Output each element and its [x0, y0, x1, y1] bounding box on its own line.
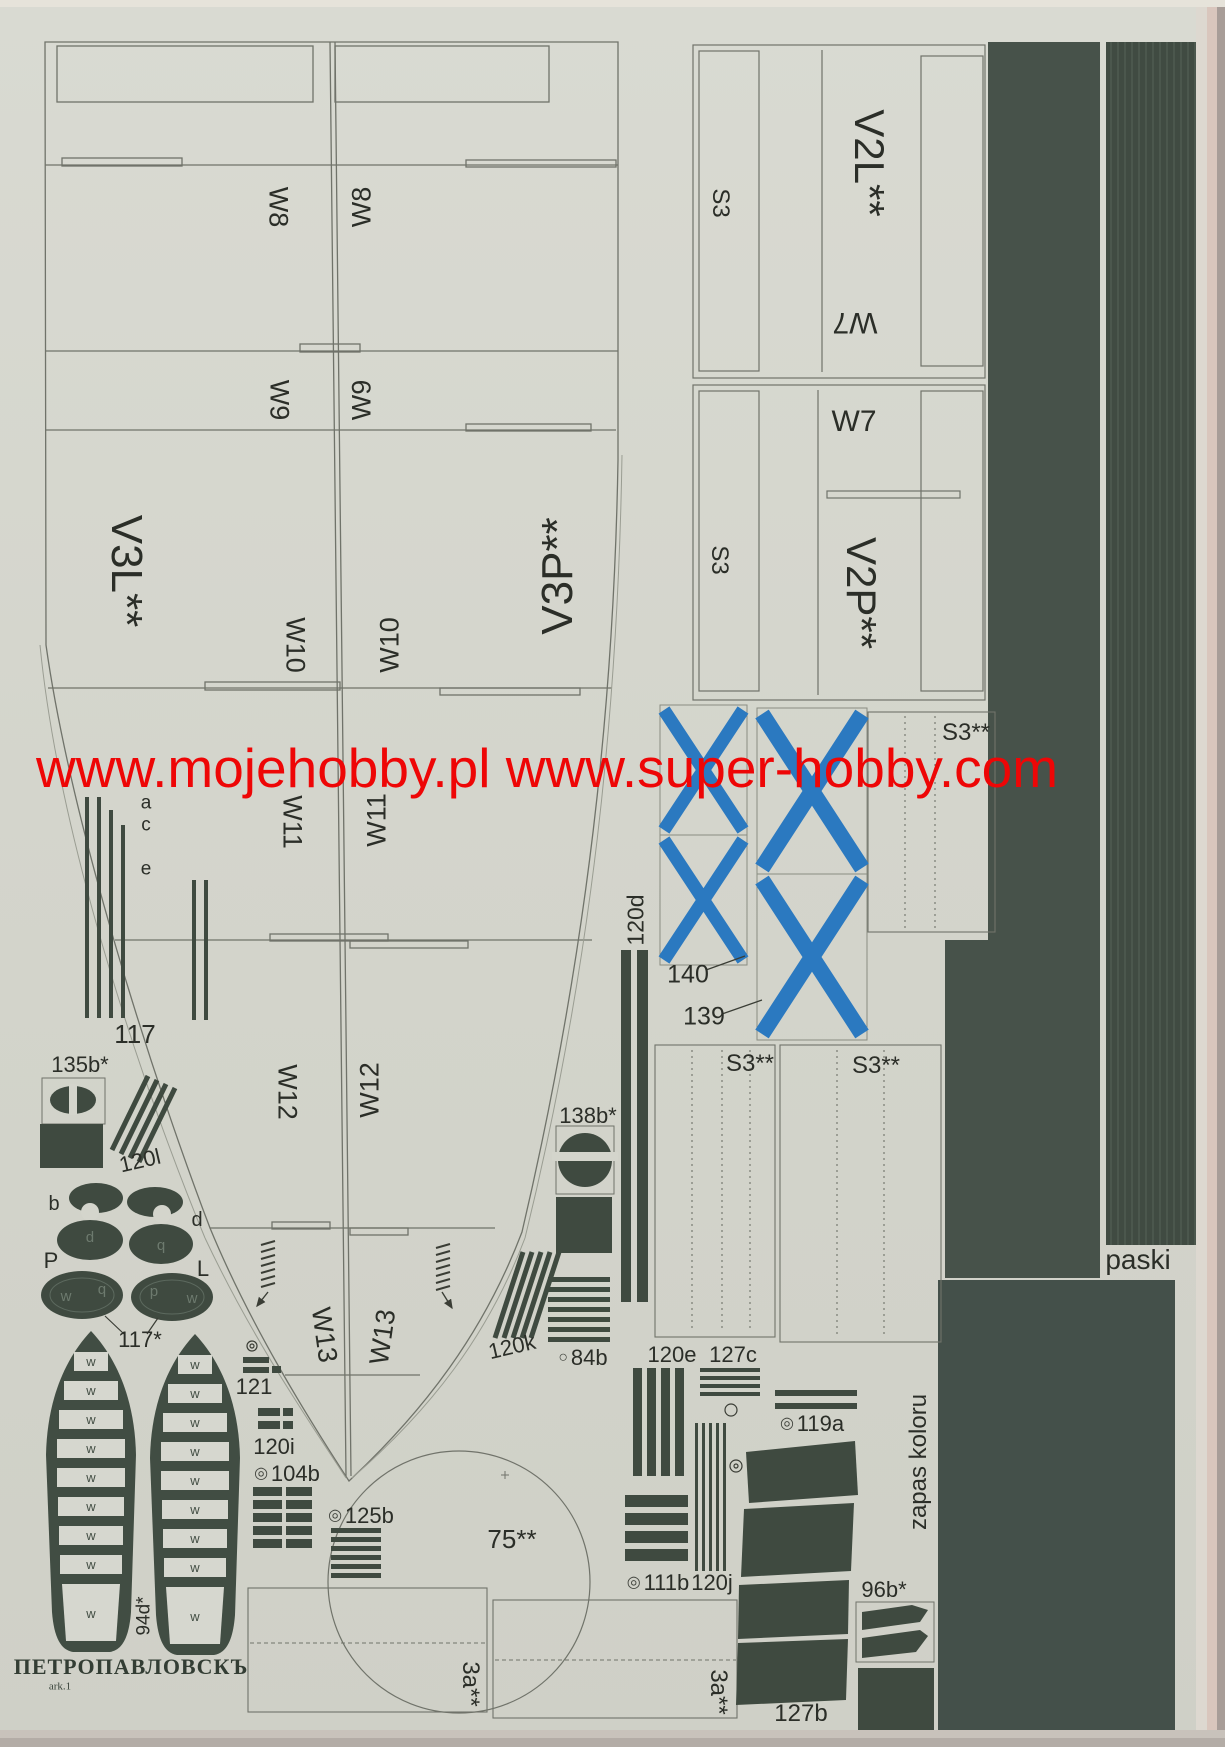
part-label-138b: 138b*	[559, 1105, 617, 1127]
margin-label-zapas-koloru: zapas koloru	[907, 1394, 931, 1530]
margin-label-paski: paski	[1105, 1246, 1170, 1274]
svg-text:w: w	[189, 1386, 200, 1401]
svg-text:b: b	[98, 1282, 106, 1299]
panel-label-w11-right: W11	[364, 793, 391, 847]
ring-icon: ◎	[328, 1508, 342, 1524]
panel-label-w13-left: W13	[307, 1306, 341, 1365]
strip-letter-e: e	[141, 860, 152, 879]
part-letter-d: d	[191, 1210, 202, 1230]
tab-hatch-left	[261, 1241, 275, 1287]
tab-hatch-right	[436, 1244, 450, 1290]
dot-icon: ○	[558, 1350, 568, 1366]
panel-label-s3-bottom-right: S3**	[852, 1054, 900, 1078]
svg-text:w: w	[189, 1609, 200, 1624]
tab-label-w7-bottom: W7	[832, 407, 877, 437]
panel-label-w9-left: W9	[266, 380, 293, 421]
svg-text:w: w	[85, 1412, 96, 1427]
panel-label-w9-right: W9	[349, 380, 376, 421]
panel-label-w11-left: W11	[279, 795, 306, 849]
svg-text:w: w	[60, 1288, 72, 1305]
color-reserve-blocks	[938, 42, 1196, 1730]
ship-name: ПЕТРОПАВЛОВСКЪ	[14, 1656, 249, 1678]
part-label-125b: ◎125b	[328, 1505, 394, 1527]
ring-icon: ◎	[780, 1416, 794, 1432]
strip-label-s3-2: S3	[707, 545, 731, 574]
svg-text:w: w	[189, 1357, 200, 1372]
notched-ellipses	[69, 1183, 183, 1223]
part-label-104b: ◎104b	[254, 1463, 320, 1485]
part-96b	[856, 1602, 934, 1730]
model-sheet-page: p q w b d w ww ww ww ww w	[0, 0, 1225, 1747]
svg-text:w: w	[189, 1415, 200, 1430]
strip-label-s3-1: S3	[708, 188, 732, 217]
small-ellipses: p q	[57, 1220, 193, 1264]
svg-text:w: w	[189, 1473, 200, 1488]
part-135b	[40, 1078, 105, 1168]
part-label-120j: 120j	[691, 1572, 733, 1594]
part-label-84b: ○84b	[558, 1347, 607, 1369]
big-ellipses-117: w b d w	[41, 1271, 213, 1334]
panel-label-w12-left: W12	[274, 1064, 301, 1120]
panel-label-w10-right: W10	[377, 617, 404, 673]
svg-text:w: w	[85, 1499, 96, 1514]
svg-text:w: w	[189, 1502, 200, 1517]
part-label-127b: 127b	[774, 1702, 827, 1726]
tab-arrows	[257, 1292, 452, 1308]
flag-label-140: 140	[667, 963, 709, 988]
part-label-119a: ◎119a	[780, 1413, 844, 1435]
part-letter-l: L	[197, 1258, 209, 1280]
paski-strip-column	[1106, 42, 1196, 1245]
svg-text:w: w	[85, 1441, 96, 1456]
svg-text:q: q	[157, 1237, 165, 1254]
panel-label-w8-right: W8	[349, 187, 376, 228]
panel-label-w12-right: W12	[357, 1062, 384, 1118]
svg-text:p: p	[86, 1230, 94, 1247]
part-label-75: 75**	[487, 1526, 536, 1552]
ring-icon: ◎	[627, 1575, 641, 1591]
part-label-v3l: V3L**	[104, 515, 148, 628]
part-label-120e: 120e	[648, 1344, 697, 1366]
part-label-v2l: V2L**	[848, 109, 890, 216]
svg-text:w: w	[186, 1290, 198, 1307]
part-label-120d: 120d	[625, 894, 648, 945]
sheet-note: ark.1	[49, 1682, 71, 1693]
svg-text:w: w	[85, 1557, 96, 1572]
part-127b-trapezoids	[736, 1441, 858, 1705]
svg-text:w: w	[189, 1444, 200, 1459]
panel-label-w8-left: W8	[265, 187, 292, 228]
svg-text:w: w	[85, 1528, 96, 1543]
ring-icon: ◎	[254, 1466, 268, 1482]
strip-letter-c: c	[141, 816, 151, 835]
part-label-127c: 127c	[709, 1344, 757, 1366]
panels-3a	[248, 1588, 737, 1718]
svg-text:w: w	[85, 1354, 96, 1369]
part-label-3a-right: 3a**	[706, 1669, 730, 1714]
part-letter-p: P	[44, 1250, 59, 1272]
part-138b	[552, 1126, 618, 1253]
part-label-135b: 135b*	[51, 1054, 109, 1076]
part-label-96b: 96b*	[861, 1579, 906, 1601]
svg-text:w: w	[85, 1606, 96, 1621]
part-label-121: 121	[236, 1376, 273, 1398]
part-label-117star: 117*	[118, 1329, 162, 1351]
svg-text:w: w	[189, 1560, 200, 1575]
part-label-111b: ◎111b	[627, 1572, 690, 1594]
panel-label-s3-bottom-left: S3**	[726, 1052, 774, 1076]
svg-text:w: w	[189, 1531, 200, 1546]
part-label-3a-left: 3a**	[458, 1661, 482, 1706]
part-label-117: 117	[114, 1021, 155, 1047]
svg-text:w: w	[85, 1470, 96, 1485]
part-label-94d: 94d*	[135, 1596, 154, 1635]
part-label-v3p: V3P**	[536, 517, 580, 634]
part-label-120i: 120i	[253, 1436, 295, 1458]
part-label-v2p: V2P**	[840, 537, 882, 649]
sheet-geometry: p q w b d w ww ww ww ww w	[0, 0, 1225, 1747]
tab-label-w7-top: W7	[833, 307, 878, 337]
watermark: www.mojehobby.pl www.super-hobby.com	[36, 736, 1058, 800]
part-letter-b: b	[48, 1194, 59, 1214]
svg-text:d: d	[150, 1284, 158, 1301]
zapas-koloru-block	[938, 1280, 1175, 1730]
svg-text:w: w	[85, 1383, 96, 1398]
panel-label-w10-left: W10	[282, 617, 309, 673]
flag-label-139: 139	[683, 1005, 725, 1030]
